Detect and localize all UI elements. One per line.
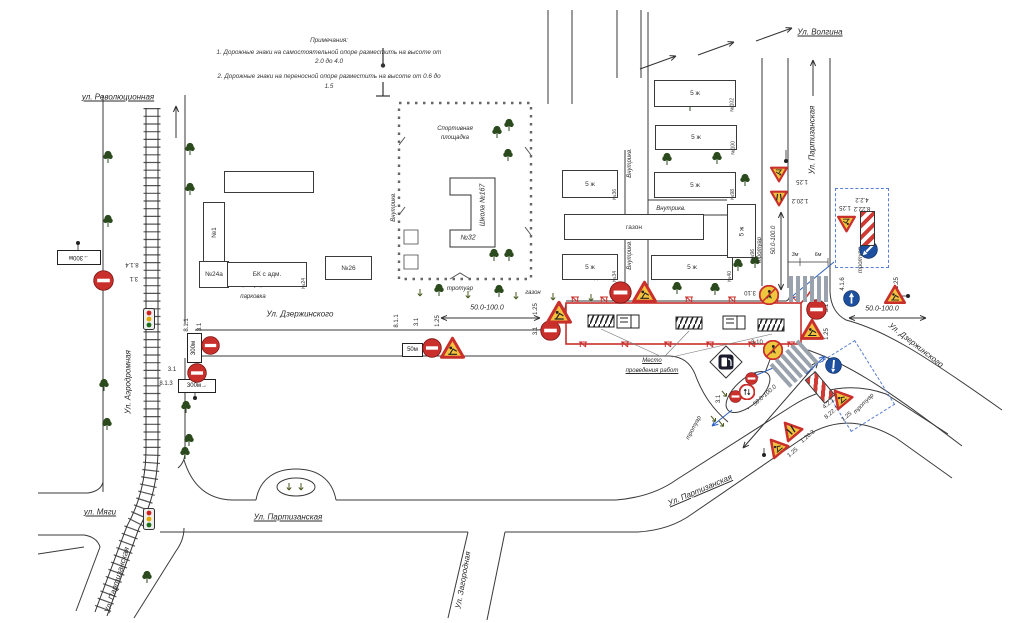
sign-code-label: 4.1.6	[840, 277, 846, 290]
distance-plate: →300м	[57, 250, 101, 265]
sign-code-label: 8.1.1	[394, 314, 400, 327]
direction-arrow-blue	[712, 410, 732, 426]
building: БК с адм.№24	[227, 262, 307, 287]
crosswalk-stripe	[796, 276, 800, 302]
street-name-label: Ул. Партизанская	[254, 513, 323, 522]
distance-plate: 300м	[187, 333, 202, 363]
building-label: 5 ж	[690, 182, 700, 189]
direction-arrow	[640, 56, 676, 69]
small-down-arrow	[551, 293, 555, 300]
tree-icon	[492, 126, 501, 138]
building: №26	[325, 256, 372, 280]
tree-icon	[180, 447, 189, 459]
map-label: Внутрикв.	[627, 240, 633, 270]
notes-block: Примечания: 1. Дорожные знаки на самосто…	[214, 36, 444, 91]
crosswalk-stripe	[824, 276, 828, 302]
gas-station-symbol	[709, 345, 743, 379]
building: 5 ж№40	[651, 255, 733, 280]
distance-plate: 50м	[402, 343, 423, 357]
roadworks-sign-1-25	[440, 336, 465, 361]
tree-icon	[184, 434, 193, 446]
tree-icon	[712, 152, 721, 164]
building: 5 ж№100	[655, 125, 737, 150]
street-name-label: ул. Мяги	[84, 508, 116, 517]
building: 5 ж№98	[654, 172, 736, 198]
street-name-label: Ул. Дзержинского	[267, 310, 334, 319]
small-down-arrow	[418, 289, 422, 296]
building-label: 5 ж	[585, 181, 595, 188]
direction-arrow	[849, 315, 926, 320]
direction-arrow	[810, 60, 815, 96]
map-label: парковка	[240, 294, 265, 300]
building: 5 ж№96	[727, 204, 756, 258]
crosswalk-stripe	[817, 276, 821, 302]
no-entry-sign-3-1	[93, 270, 114, 291]
crosswalk-stripe	[803, 276, 807, 302]
tree-icon	[181, 401, 190, 413]
note-line-2: 2. Дорожные знаки на переносной опоре ра…	[214, 72, 444, 90]
sign-code-label: 3.1	[130, 275, 138, 281]
tree-icon	[710, 283, 719, 295]
direction-arrow	[756, 28, 792, 41]
note-line-1: 1. Дорожные знаки на самостоятельной опо…	[214, 48, 444, 66]
building-label: 5 ж	[690, 90, 700, 97]
traffic-light	[143, 308, 155, 330]
map-label: 6м	[815, 252, 822, 258]
traffic-light	[143, 508, 155, 530]
roadworks-sign-1-25	[632, 280, 657, 305]
fence-mark	[685, 297, 693, 302]
map-label: площадка	[441, 135, 469, 141]
sign-code-label: 1.25	[839, 204, 851, 210]
street-name-label: Ул. Волгина	[797, 28, 842, 37]
small-down-arrow	[709, 415, 717, 423]
building-number: №100	[731, 141, 737, 155]
direction-arrow	[698, 42, 734, 55]
building: №24а	[199, 261, 229, 288]
fence-mark	[579, 342, 587, 347]
map-label: Внутрикв.	[391, 192, 397, 222]
building-number: №98	[730, 189, 736, 200]
fence-mark	[571, 297, 579, 302]
sign-code-label: 3.1	[716, 395, 722, 403]
map-label: Школа №167	[480, 184, 487, 227]
fence-mark	[621, 342, 629, 347]
map-label: 50.0-100.0	[470, 305, 503, 312]
tree-icon	[494, 285, 503, 297]
map-label: тротуар	[757, 237, 763, 263]
building: 5 ж№102	[654, 80, 736, 107]
no-entry-sign-3-1	[806, 299, 827, 320]
small-down-arrow	[589, 294, 593, 301]
map-label: проведения работ	[626, 368, 679, 374]
tree-icon	[489, 249, 498, 261]
no-entry-sign-3-1	[201, 336, 220, 355]
direction-sign-4-1-6	[843, 290, 860, 307]
notes-title: Примечания:	[214, 36, 444, 45]
building-label: №1	[211, 227, 218, 238]
building-number: №40	[727, 271, 733, 282]
sign-code-label: 3.10	[744, 289, 756, 295]
building: газон	[564, 214, 704, 240]
prohibition-sign	[739, 384, 755, 400]
no-pedestrians-sign-3-10	[759, 285, 779, 305]
map-label: Спортивная	[437, 126, 473, 132]
sign-code-label: 3.1	[414, 318, 420, 326]
tree-icon	[434, 284, 443, 296]
fence-mark	[728, 297, 736, 302]
street-name-label: Ул. Аэродромная	[124, 350, 133, 414]
sign-code-label: 4.2.2	[855, 196, 868, 202]
distance-plate-text: →300м	[69, 255, 89, 261]
small-down-arrow	[287, 483, 291, 490]
building-number: №24	[301, 278, 307, 289]
building-label: №24а	[205, 271, 223, 278]
tree-icon	[503, 149, 512, 161]
roadworks-sign-1-25	[884, 284, 906, 306]
sign-code-label: 8.1.3	[159, 381, 172, 387]
sign-code-label: 3.1	[533, 327, 539, 335]
small-down-arrow	[466, 291, 470, 298]
sign-code-label: 1.25	[533, 303, 539, 315]
roadworks-sign-1-25	[770, 165, 788, 183]
sign-code-label: 3.1	[168, 367, 176, 373]
building-label: 5 ж	[691, 134, 701, 141]
sign-code-label: 1.20.2	[792, 197, 809, 203]
fence-mark	[600, 297, 608, 302]
sign-code-label: 8.1.4	[125, 261, 138, 267]
tree-icon	[185, 183, 194, 195]
tree-icon	[102, 418, 111, 430]
map-label: 3м	[792, 252, 799, 258]
tree-icon	[662, 153, 671, 165]
crosswalk-stripe	[789, 276, 793, 302]
sign-code-label: 8.1.1	[184, 318, 190, 331]
building-label: 5 ж	[585, 264, 595, 271]
tree-icon	[733, 259, 742, 271]
sign-code-label: 1.25	[435, 315, 441, 327]
map-label: Внутрикв.	[656, 206, 686, 212]
distance-plate-text: 300м→	[187, 383, 207, 389]
sign-code-label: 3.10	[751, 340, 763, 346]
obstacle-plate-8-22-2	[860, 211, 875, 246]
building-label: газон	[626, 224, 642, 231]
tree-icon	[103, 215, 112, 227]
tree-icon	[185, 143, 194, 155]
street-name-label: ул. Революционная	[82, 93, 154, 102]
building: №1	[203, 202, 225, 262]
distance-plate-text: 300м	[192, 341, 198, 355]
distance-plate-text: 50м	[407, 347, 418, 353]
no-entry-sign-3-1	[609, 281, 632, 304]
sign-code-label: 1.25	[796, 178, 808, 184]
crosswalk	[789, 276, 836, 302]
sign-code-label: 3.1	[197, 323, 203, 331]
roadworks-sign-1-25	[546, 300, 572, 326]
building-number: №96	[750, 249, 756, 260]
direction-arrow	[778, 212, 783, 290]
small-down-arrow	[299, 483, 303, 490]
direction-arrow	[441, 315, 540, 320]
small-down-arrow	[514, 292, 518, 299]
traffic-scheme-plan: Примечания: 1. Дорожные знаки на самосто…	[0, 0, 1016, 623]
building: 5 ж№36	[562, 170, 618, 198]
roadworks-sign-1-25	[837, 214, 856, 233]
tree-icon	[504, 249, 513, 261]
direction-arrow	[173, 106, 178, 138]
building: 5 ж№34	[562, 254, 618, 280]
building-label: 5 ж	[738, 226, 745, 236]
building-label: №26	[341, 265, 355, 272]
building-number: №36	[612, 189, 618, 200]
tree-icon	[99, 379, 108, 391]
map-label: газон	[525, 290, 540, 296]
building-number: №102	[730, 98, 736, 112]
tree-icon	[504, 119, 513, 131]
sign-code-label: 1.25	[824, 328, 830, 340]
map-label: Внутрикв.	[627, 148, 633, 178]
tree-icon	[740, 174, 749, 186]
no-entry-sign-3-1	[422, 338, 442, 358]
street-name-label: Ул. Партизанская	[808, 106, 817, 175]
sign-pole-base	[906, 294, 910, 298]
tree-icon	[103, 151, 112, 163]
fence-mark	[664, 342, 672, 347]
map-label: 50.0-100.0	[865, 306, 898, 313]
crosswalk-stripe	[810, 276, 814, 302]
building-label: БК с адм.	[253, 271, 282, 278]
road-narrows-sign-1-20-2	[770, 189, 788, 207]
map-label: №32	[460, 235, 475, 242]
building	[224, 171, 314, 193]
tree-icon	[672, 282, 681, 294]
map-label: Место	[642, 358, 662, 364]
tree-icon	[142, 571, 151, 583]
no-entry-sign-3-1	[187, 363, 207, 383]
building-label: 5 ж	[687, 264, 697, 271]
map-label: тротуар	[447, 286, 473, 292]
map-label: 50.0-100.0	[771, 226, 777, 255]
legend-symbols	[372, 44, 394, 102]
